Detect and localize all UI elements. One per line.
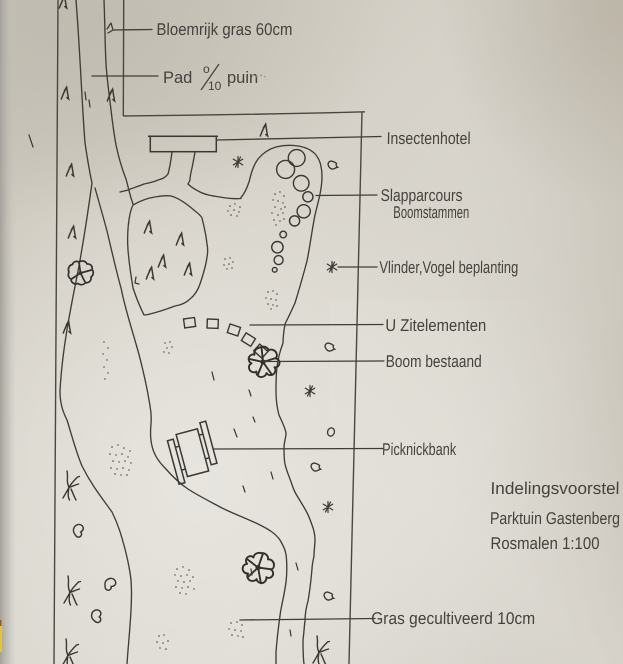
svg-text:o: o (203, 62, 210, 76)
svg-text:Vlinder,Vogel beplanting: Vlinder,Vogel beplanting (379, 258, 518, 277)
svg-text:10: 10 (208, 79, 222, 93)
svg-text:Gras gecultiveerd 10cm: Gras gecultiveerd 10cm (371, 609, 535, 628)
svg-text:Indelingsvoorstel: Indelingsvoorstel (490, 479, 619, 498)
svg-text:U Zitelementen: U Zitelementen (385, 316, 486, 335)
svg-text:Boomstammen: Boomstammen (393, 203, 469, 222)
svg-text:Parktuin Gastenberg: Parktuin Gastenberg (490, 509, 620, 528)
svg-text:Insectenhotel: Insectenhotel (386, 129, 470, 148)
svg-text:Rosmalen 1:100: Rosmalen 1:100 (490, 534, 599, 553)
svg-text:puin: puin (227, 69, 258, 87)
svg-text:Bloemrijk gras 60cm: Bloemrijk gras 60cm (156, 20, 292, 39)
svg-text:Pad: Pad (163, 69, 192, 87)
svg-text:Picknickbank: Picknickbank (382, 440, 457, 459)
svg-text:Boom bestaand: Boom bestaand (386, 352, 482, 371)
